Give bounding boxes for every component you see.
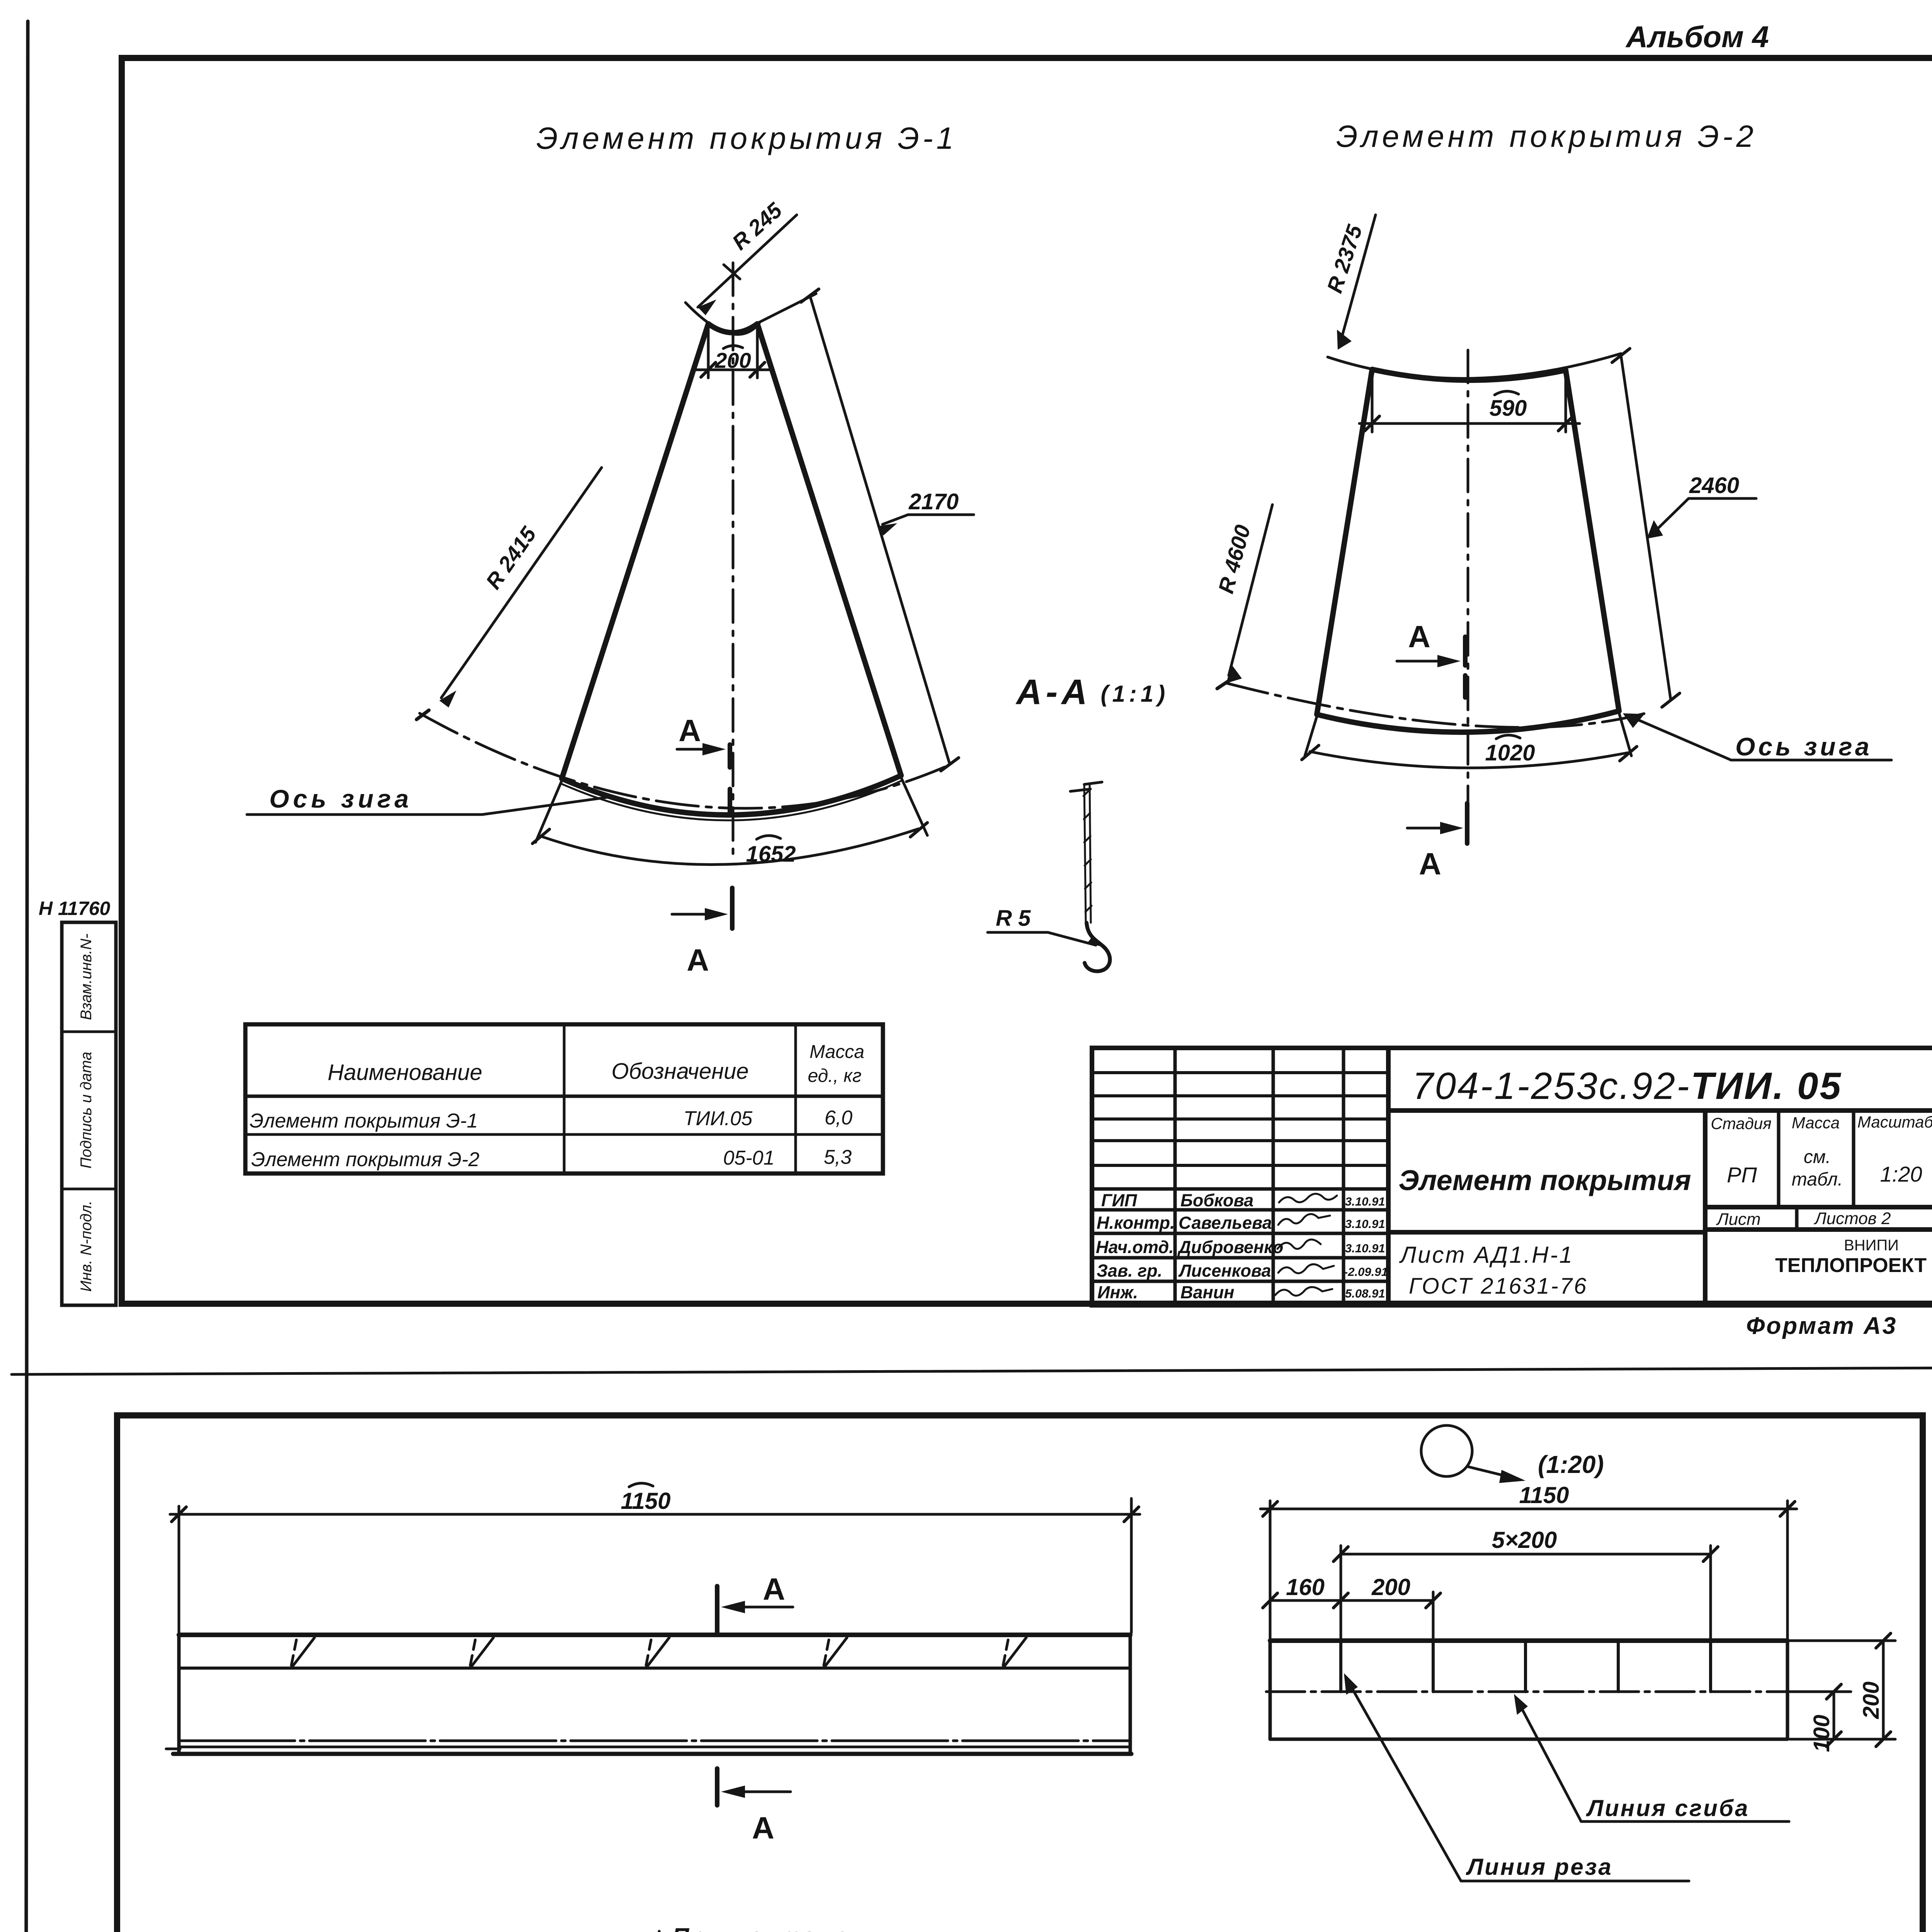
svg-text:-2.09.91: -2.09.91: [1344, 1265, 1388, 1279]
svg-text:ВНИПИ: ВНИПИ: [1844, 1237, 1899, 1254]
svg-text:Нач.отд.: Нач.отд.: [1096, 1237, 1174, 1257]
svg-text:1150: 1150: [621, 1488, 670, 1514]
svg-text:Листов 2: Листов 2: [1814, 1209, 1891, 1228]
svg-text:Масса: Масса: [810, 1042, 864, 1062]
svg-text:Лист АД1.Н-1: Лист АД1.Н-1: [1399, 1242, 1574, 1268]
svg-text:200: 200: [1371, 1574, 1410, 1600]
svg-text:Обозначение: Обозначение: [611, 1059, 748, 1084]
svg-text:Элемент покрытия Э-1: Элемент покрытия Э-1: [250, 1110, 478, 1132]
svg-text:200: 200: [714, 348, 751, 372]
svg-text:А: А: [1408, 619, 1430, 654]
svg-text:5.08.91: 5.08.91: [1345, 1287, 1385, 1300]
svg-text:5×200: 5×200: [1492, 1527, 1557, 1553]
svg-text:Дибровенко: Дибровенко: [1177, 1237, 1283, 1257]
svg-text:А: А: [763, 1572, 785, 1606]
svg-text:Наименование: Наименование: [328, 1060, 482, 1085]
svg-text:Элемент покрытия: Элемент покрытия: [1398, 1164, 1691, 1196]
svg-text:см.: см.: [1804, 1147, 1831, 1167]
svg-text:05-01: 05-01: [723, 1147, 775, 1169]
svg-text:Ванин: Ванин: [1180, 1282, 1234, 1302]
svg-text:Альбом 4: Альбом 4: [1625, 20, 1769, 54]
svg-text:2460: 2460: [1689, 473, 1739, 498]
svg-text:Зав. гр.: Зав. гр.: [1097, 1261, 1162, 1281]
svg-text:При монтаже: При монтаже: [672, 1923, 850, 1932]
svg-text:5,3: 5,3: [824, 1146, 852, 1168]
svg-text:А: А: [1419, 847, 1441, 881]
svg-text:Бобкова: Бобкова: [1180, 1190, 1253, 1210]
svg-text:А: А: [752, 1811, 774, 1845]
svg-text:Инв. N-подл.: Инв. N-подл.: [78, 1201, 95, 1292]
svg-text:Савельева: Савельева: [1179, 1213, 1272, 1233]
svg-text:ТИИ.05: ТИИ.05: [684, 1107, 753, 1130]
svg-text:200: 200: [1859, 1682, 1884, 1719]
svg-text:3.10.91: 3.10.91: [1345, 1195, 1385, 1208]
svg-text:6,0: 6,0: [825, 1107, 852, 1129]
svg-text:1652: 1652: [746, 842, 796, 867]
svg-text:А-А(1:1): А-А(1:1): [1015, 672, 1169, 712]
svg-text:А: А: [679, 713, 701, 748]
svg-text:Элемент покрытия Э-2: Элемент покрытия Э-2: [1336, 119, 1757, 153]
svg-text:Лист: Лист: [1716, 1210, 1760, 1229]
svg-text:2170: 2170: [908, 489, 959, 514]
svg-text:590: 590: [1490, 396, 1527, 421]
svg-text:ед., кг: ед., кг: [808, 1066, 861, 1086]
svg-text:R 5: R 5: [996, 906, 1031, 931]
svg-text:Подпись и дата: Подпись и дата: [78, 1052, 95, 1169]
svg-text:Формат А3: Формат А3: [1746, 1313, 1897, 1339]
svg-text:Н 11760: Н 11760: [39, 898, 111, 919]
svg-text:Ось зига: Ось зига: [269, 784, 413, 813]
svg-text:Стадия: Стадия: [1711, 1114, 1771, 1133]
svg-text:Масса: Масса: [1792, 1114, 1840, 1132]
svg-text:Ось зига: Ось зига: [1735, 732, 1872, 761]
svg-text:160: 160: [1286, 1574, 1325, 1600]
svg-text:Элемент покрытия Э-1: Элемент покрытия Э-1: [536, 121, 957, 155]
svg-text:3.10.91: 3.10.91: [1345, 1217, 1385, 1231]
svg-text:ГОСТ 21631-76: ГОСТ 21631-76: [1409, 1274, 1588, 1299]
svg-text:704-1-253с.92-ТИИ. 05: 704-1-253с.92-ТИИ. 05: [1412, 1065, 1842, 1107]
svg-text:3.10.91: 3.10.91: [1345, 1242, 1385, 1255]
svg-text:табл.: табл.: [1792, 1169, 1843, 1190]
svg-text:1020: 1020: [1485, 740, 1535, 765]
svg-text:Линия реза: Линия реза: [1466, 1854, 1613, 1880]
svg-text:Взам.инв.N-: Взам.инв.N-: [78, 934, 95, 1020]
svg-text:ГИП: ГИП: [1101, 1190, 1138, 1210]
svg-text:R 4600: R 4600: [1213, 522, 1255, 596]
svg-text:R 2415: R 2415: [481, 522, 541, 594]
svg-text:100: 100: [1809, 1715, 1834, 1752]
svg-text:Элемент покрытия Э-2: Элемент покрытия Э-2: [251, 1148, 480, 1171]
svg-text:ТЕПЛОПРОЕКТ: ТЕПЛОПРОЕКТ: [1775, 1254, 1927, 1277]
svg-text:А: А: [687, 943, 709, 977]
svg-text:РП: РП: [1727, 1163, 1757, 1187]
svg-text:Линия сгиба: Линия сгиба: [1586, 1795, 1749, 1821]
svg-text:(1:20): (1:20): [1538, 1451, 1604, 1478]
svg-text:Н.контр.: Н.контр.: [1097, 1213, 1175, 1233]
svg-text:Инж.: Инж.: [1097, 1282, 1138, 1302]
svg-text:Лисенкова: Лисенкова: [1178, 1261, 1271, 1281]
svg-text:1150: 1150: [1519, 1482, 1569, 1508]
svg-text:1:20: 1:20: [1880, 1162, 1922, 1186]
svg-text:Масштаб: Масштаб: [1857, 1113, 1932, 1131]
svg-text:R 2375: R 2375: [1322, 222, 1367, 296]
svg-text:R 245: R 245: [727, 198, 787, 255]
